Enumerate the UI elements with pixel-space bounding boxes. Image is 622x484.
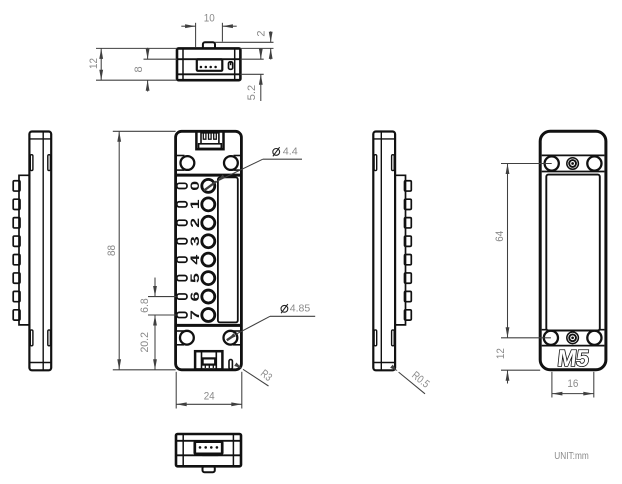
- svg-text:M5: M5: [556, 345, 590, 371]
- svg-text:12: 12: [88, 58, 100, 69]
- svg-text:5.2: 5.2: [246, 85, 258, 101]
- svg-text:20.2: 20.2: [139, 332, 151, 353]
- svg-text:UNIT:mm: UNIT:mm: [554, 450, 589, 462]
- svg-text:88: 88: [106, 245, 118, 256]
- svg-text:1: 1: [188, 199, 202, 209]
- svg-text:2: 2: [256, 30, 268, 36]
- svg-text:24: 24: [204, 390, 215, 402]
- svg-text:12: 12: [495, 348, 507, 359]
- svg-text:6: 6: [188, 292, 202, 302]
- svg-text:8: 8: [133, 66, 145, 72]
- svg-text:0: 0: [188, 181, 202, 191]
- svg-text:3: 3: [188, 236, 202, 246]
- svg-text:4.4: 4.4: [283, 146, 298, 158]
- svg-text:16: 16: [567, 378, 578, 390]
- svg-text:6.8: 6.8: [139, 298, 151, 313]
- svg-text:64: 64: [494, 231, 506, 242]
- svg-text:2: 2: [188, 218, 202, 228]
- svg-text:5: 5: [188, 273, 202, 283]
- svg-text:10: 10: [204, 13, 215, 25]
- svg-text:4.85: 4.85: [290, 303, 311, 315]
- svg-text:7: 7: [188, 310, 202, 320]
- svg-text:4: 4: [188, 254, 202, 264]
